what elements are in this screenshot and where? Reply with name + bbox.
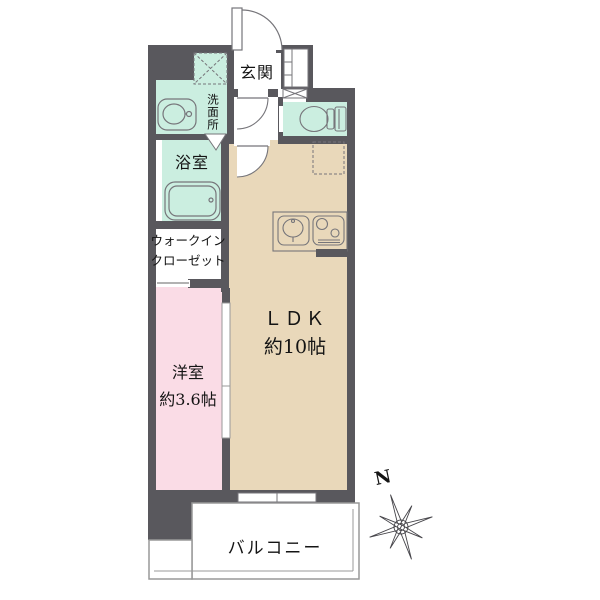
partition-sliding-door-icon xyxy=(222,303,230,438)
storage-x-box-icon xyxy=(283,89,307,98)
kitchen-sink-icon xyxy=(278,216,309,245)
western-room-label: 洋室 約3.6帖 xyxy=(159,359,216,413)
kitchen-counter-wall xyxy=(316,249,347,257)
washroom-label: 洗面所 xyxy=(205,93,221,131)
closet-sliding-door-icon xyxy=(156,280,190,287)
floor-plan: 玄関 洗面所 浴室 ウォークイン クローゼット 洋室 約3.6帖 ＬＤＫ 約10… xyxy=(0,0,600,600)
hallway-door-swing-icon xyxy=(237,89,268,129)
western-room-size: 約3.6帖 xyxy=(159,386,216,413)
ldk-door-swing-icon xyxy=(234,130,270,177)
compass-icon xyxy=(358,484,444,570)
walk-in-closet-line1: ウォークイン xyxy=(150,231,225,251)
washing-machine-space-icon xyxy=(194,53,227,84)
refrigerator-space-icon xyxy=(313,142,344,174)
ldk-size: 約10帖 xyxy=(263,333,326,361)
ldk-name: ＬＤＫ xyxy=(263,305,326,333)
bathtub-icon xyxy=(165,182,220,220)
bathroom-label: 浴室 xyxy=(175,149,209,173)
balcony-window-icon xyxy=(238,493,316,502)
balcony-label: バルコニー xyxy=(228,534,323,559)
shoe-cabinet-icon xyxy=(284,49,308,87)
toilet-icon xyxy=(300,107,346,132)
toilet-door-icon xyxy=(279,106,283,132)
ldk-label: ＬＤＫ 約10帖 xyxy=(263,305,326,361)
bathroom-door-icon xyxy=(205,134,226,150)
kitchen-counter xyxy=(273,212,347,251)
walk-in-closet-line2: クローゼット xyxy=(150,251,225,271)
entrance-door-swing-icon xyxy=(232,8,282,53)
stove-icon xyxy=(313,216,344,245)
walk-in-closet-label: ウォークイン クローゼット xyxy=(150,231,225,271)
western-room-name: 洋室 xyxy=(159,359,216,386)
sink-icon xyxy=(158,99,196,130)
entrance-label: 玄関 xyxy=(240,59,274,83)
plan-linework xyxy=(0,0,600,600)
